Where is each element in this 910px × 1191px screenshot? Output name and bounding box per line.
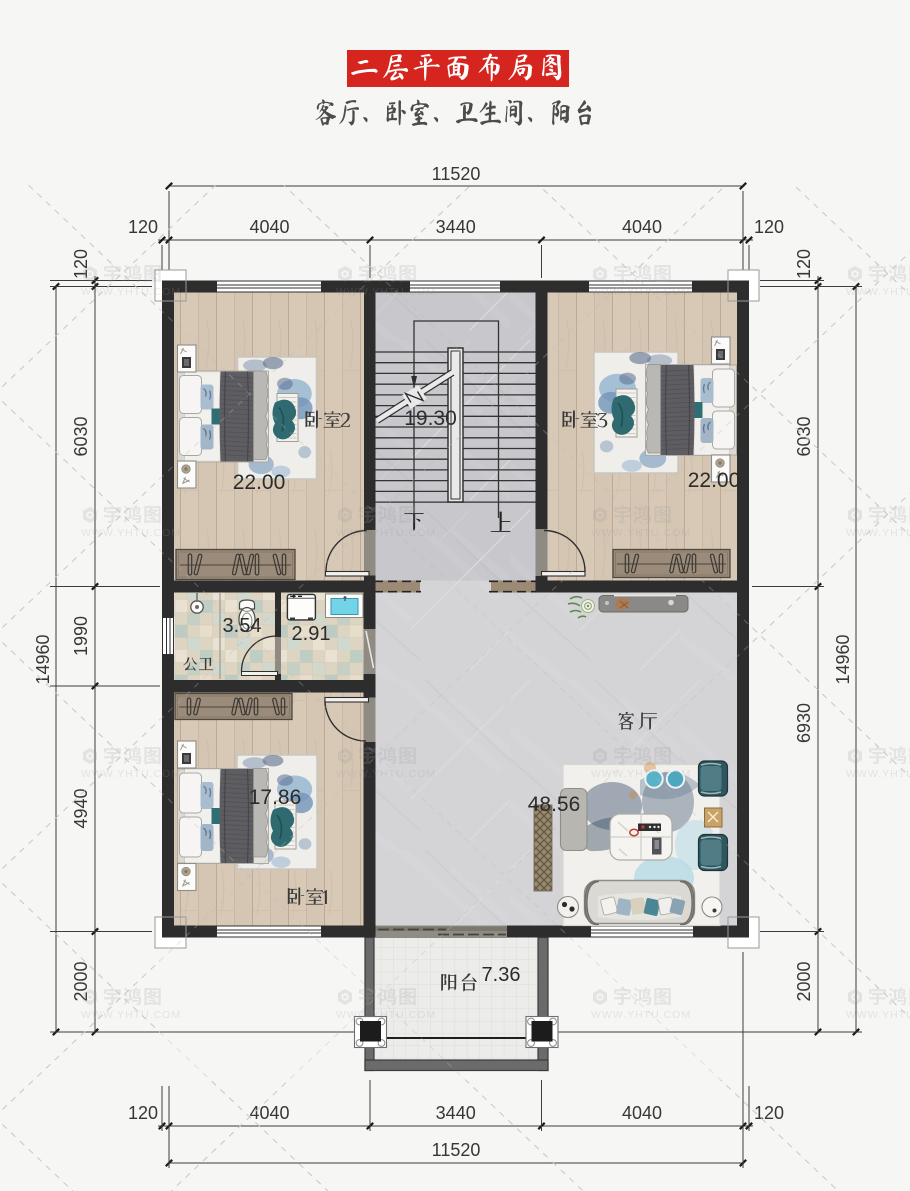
svg-text:120: 120 — [71, 249, 91, 279]
svg-text:120: 120 — [794, 249, 814, 279]
svg-text:6930: 6930 — [794, 703, 814, 743]
svg-text:6030: 6030 — [794, 416, 814, 456]
svg-text:120: 120 — [128, 217, 158, 237]
svg-text:4040: 4040 — [622, 1103, 662, 1123]
svg-text:2.91: 2.91 — [292, 623, 331, 645]
svg-text:4040: 4040 — [622, 217, 662, 237]
svg-text:4040: 4040 — [249, 217, 289, 237]
svg-text:22.00: 22.00 — [233, 471, 286, 494]
svg-text:22.00: 22.00 — [688, 469, 741, 492]
svg-text:14960: 14960 — [833, 634, 853, 684]
svg-text:6030: 6030 — [71, 416, 91, 456]
svg-text:4040: 4040 — [249, 1103, 289, 1123]
svg-text:19.30: 19.30 — [404, 407, 457, 430]
svg-text:11520: 11520 — [432, 164, 481, 184]
svg-text:120: 120 — [754, 217, 784, 237]
svg-text:3.54: 3.54 — [223, 615, 262, 637]
svg-text:1990: 1990 — [71, 616, 91, 656]
svg-text:120: 120 — [754, 1103, 784, 1123]
svg-text:3440: 3440 — [436, 217, 476, 237]
svg-text:2000: 2000 — [71, 961, 91, 1001]
svg-text:14960: 14960 — [33, 634, 53, 684]
svg-text:3440: 3440 — [436, 1103, 476, 1123]
svg-text:120: 120 — [128, 1103, 158, 1123]
svg-text:WWW.YHTU.COM: WWW.YHTU.COM — [81, 286, 181, 298]
svg-text:2000: 2000 — [794, 961, 814, 1001]
svg-text:17.86: 17.86 — [249, 786, 302, 809]
svg-text:7.36: 7.36 — [482, 964, 521, 986]
svg-text:11520: 11520 — [432, 1140, 481, 1160]
